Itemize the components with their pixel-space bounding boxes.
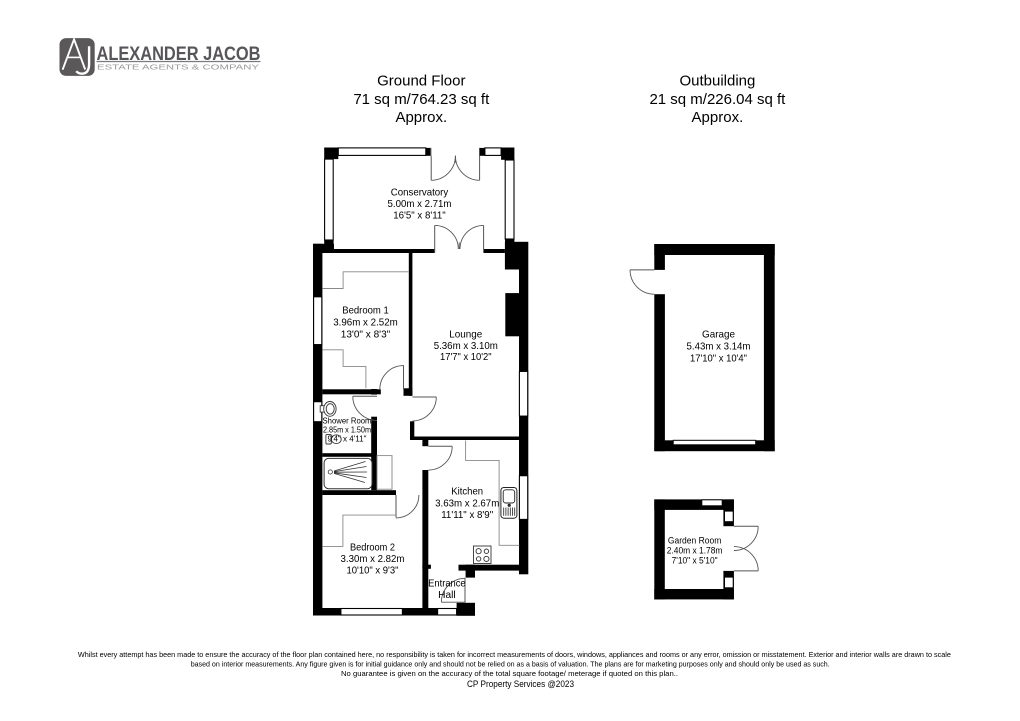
svg-text:5.00m x 2.71m: 5.00m x 2.71m (388, 198, 452, 210)
svg-text:Approx.: Approx. (395, 109, 447, 126)
svg-text:10'10" x 9'3": 10'10" x 9'3" (347, 564, 399, 576)
svg-text:11'11" x 8'9": 11'11" x 8'9" (441, 509, 493, 521)
svg-text:17'7" x 10'2": 17'7" x 10'2" (440, 351, 492, 363)
svg-text:16'5" x 8'11": 16'5" x 8'11" (393, 209, 446, 221)
svg-text:CP Property Services @2023: CP Property Services @2023 (467, 679, 574, 690)
svg-text:Conservatory: Conservatory (391, 186, 449, 198)
svg-text:based on interior measurements: based on interior measurements. Any figu… (191, 660, 830, 669)
svg-text:13'0" x 8'3": 13'0" x 8'3" (341, 328, 391, 340)
svg-text:ESTATE AGENTS & COMPANY: ESTATE AGENTS & COMPANY (97, 63, 259, 72)
svg-text:Kitchen: Kitchen (451, 486, 483, 498)
svg-text:5.43m x 3.14m: 5.43m x 3.14m (687, 341, 751, 353)
svg-text:Outbuilding: Outbuilding (679, 73, 755, 90)
svg-text:Approx.: Approx. (692, 109, 744, 126)
svg-text:21 sq m/226.04 sq ft: 21 sq m/226.04 sq ft (649, 91, 786, 108)
svg-text:71 sq m/764.23 sq ft: 71 sq m/764.23 sq ft (353, 91, 490, 108)
svg-text:Entrance: Entrance (428, 579, 466, 590)
svg-text:No guarantee is given on the a: No guarantee is given on the accuracy of… (341, 669, 678, 678)
svg-text:9'4" x 4'11": 9'4" x 4'11" (328, 434, 367, 444)
svg-text:3.63m x 2.67m: 3.63m x 2.67m (435, 497, 499, 509)
svg-text:7'10" x 5'10": 7'10" x 5'10" (672, 556, 718, 567)
svg-text:3.30m x 2.82m: 3.30m x 2.82m (341, 553, 405, 565)
svg-text:Bedroom 1: Bedroom 1 (342, 304, 389, 316)
svg-text:17'10" x 10'4": 17'10" x 10'4" (690, 353, 747, 365)
svg-text:Ground Floor: Ground Floor (377, 73, 465, 90)
svg-text:3.96m x 2.52m: 3.96m x 2.52m (333, 316, 398, 328)
svg-text:Garage: Garage (702, 329, 735, 341)
svg-text:Bedroom 2: Bedroom 2 (350, 541, 395, 553)
svg-text:Whilst every attempt has been: Whilst every attempt has been made to en… (78, 650, 951, 659)
svg-text:Lounge: Lounge (449, 328, 482, 340)
svg-text:Hall: Hall (438, 590, 456, 601)
